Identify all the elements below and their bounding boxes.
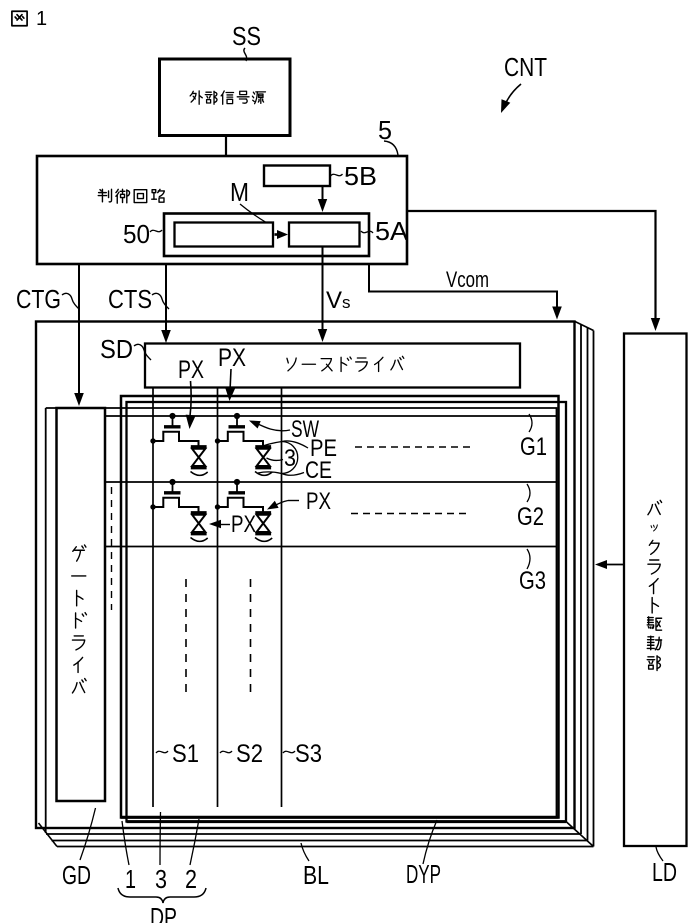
svg-text:5A: 5A <box>375 216 409 246</box>
svg-text:PX: PX <box>231 511 256 538</box>
svg-text:s: s <box>342 293 351 312</box>
svg-text:G1: G1 <box>520 433 547 461</box>
svg-text:CTG: CTG <box>16 284 61 314</box>
svg-text:2: 2 <box>185 864 197 894</box>
svg-text:PX: PX <box>218 344 246 372</box>
svg-text:GD: GD <box>62 860 91 890</box>
svg-text:PX: PX <box>178 356 204 384</box>
svg-text:50: 50 <box>123 219 150 249</box>
svg-text:S3: S3 <box>295 740 322 768</box>
svg-text:3: 3 <box>155 864 167 894</box>
svg-text:DP: DP <box>150 902 177 923</box>
svg-text:G3: G3 <box>519 567 546 595</box>
svg-text:CE: CE <box>305 457 332 484</box>
svg-text:CNT: CNT <box>504 52 547 82</box>
svg-text:Vcom: Vcom <box>446 267 489 292</box>
svg-text:1: 1 <box>125 864 136 894</box>
svg-text:S1: S1 <box>172 740 199 768</box>
svg-text:BL: BL <box>303 860 329 890</box>
svg-text:CTS: CTS <box>108 284 152 314</box>
svg-text:1: 1 <box>36 8 47 30</box>
svg-text:LD: LD <box>652 857 677 887</box>
svg-text:3: 3 <box>284 445 296 472</box>
svg-text:PX: PX <box>306 488 331 515</box>
svg-text:SS: SS <box>232 21 261 51</box>
svg-text:G2: G2 <box>517 503 544 531</box>
svg-text:M: M <box>230 177 249 207</box>
svg-text:V: V <box>326 287 342 314</box>
svg-text:5B: 5B <box>344 161 377 191</box>
svg-text:S2: S2 <box>236 740 263 768</box>
svg-text:SD: SD <box>100 334 133 364</box>
